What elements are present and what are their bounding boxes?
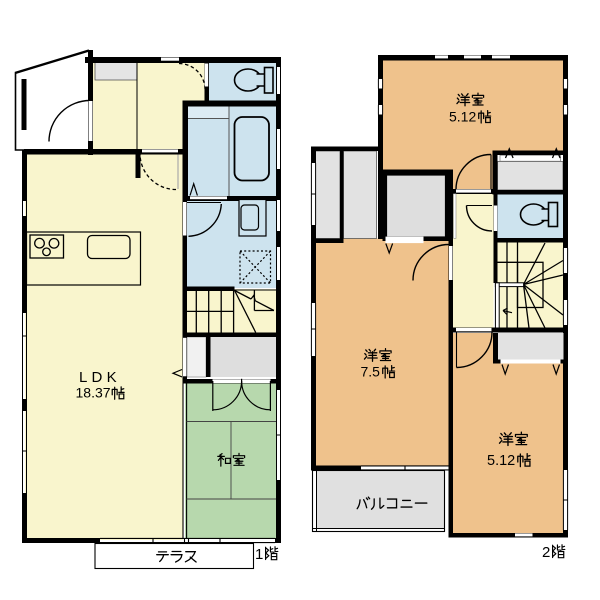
svg-text:5.12: 5.12 xyxy=(449,109,476,125)
svg-text:5.12: 5.12 xyxy=(487,453,515,469)
svg-text:2: 2 xyxy=(542,544,550,561)
svg-text:7.5: 7.5 xyxy=(361,364,381,380)
svg-text:LDK: LDK xyxy=(79,369,121,386)
svg-text:18.37: 18.37 xyxy=(76,385,111,401)
svg-text:1: 1 xyxy=(255,546,263,563)
